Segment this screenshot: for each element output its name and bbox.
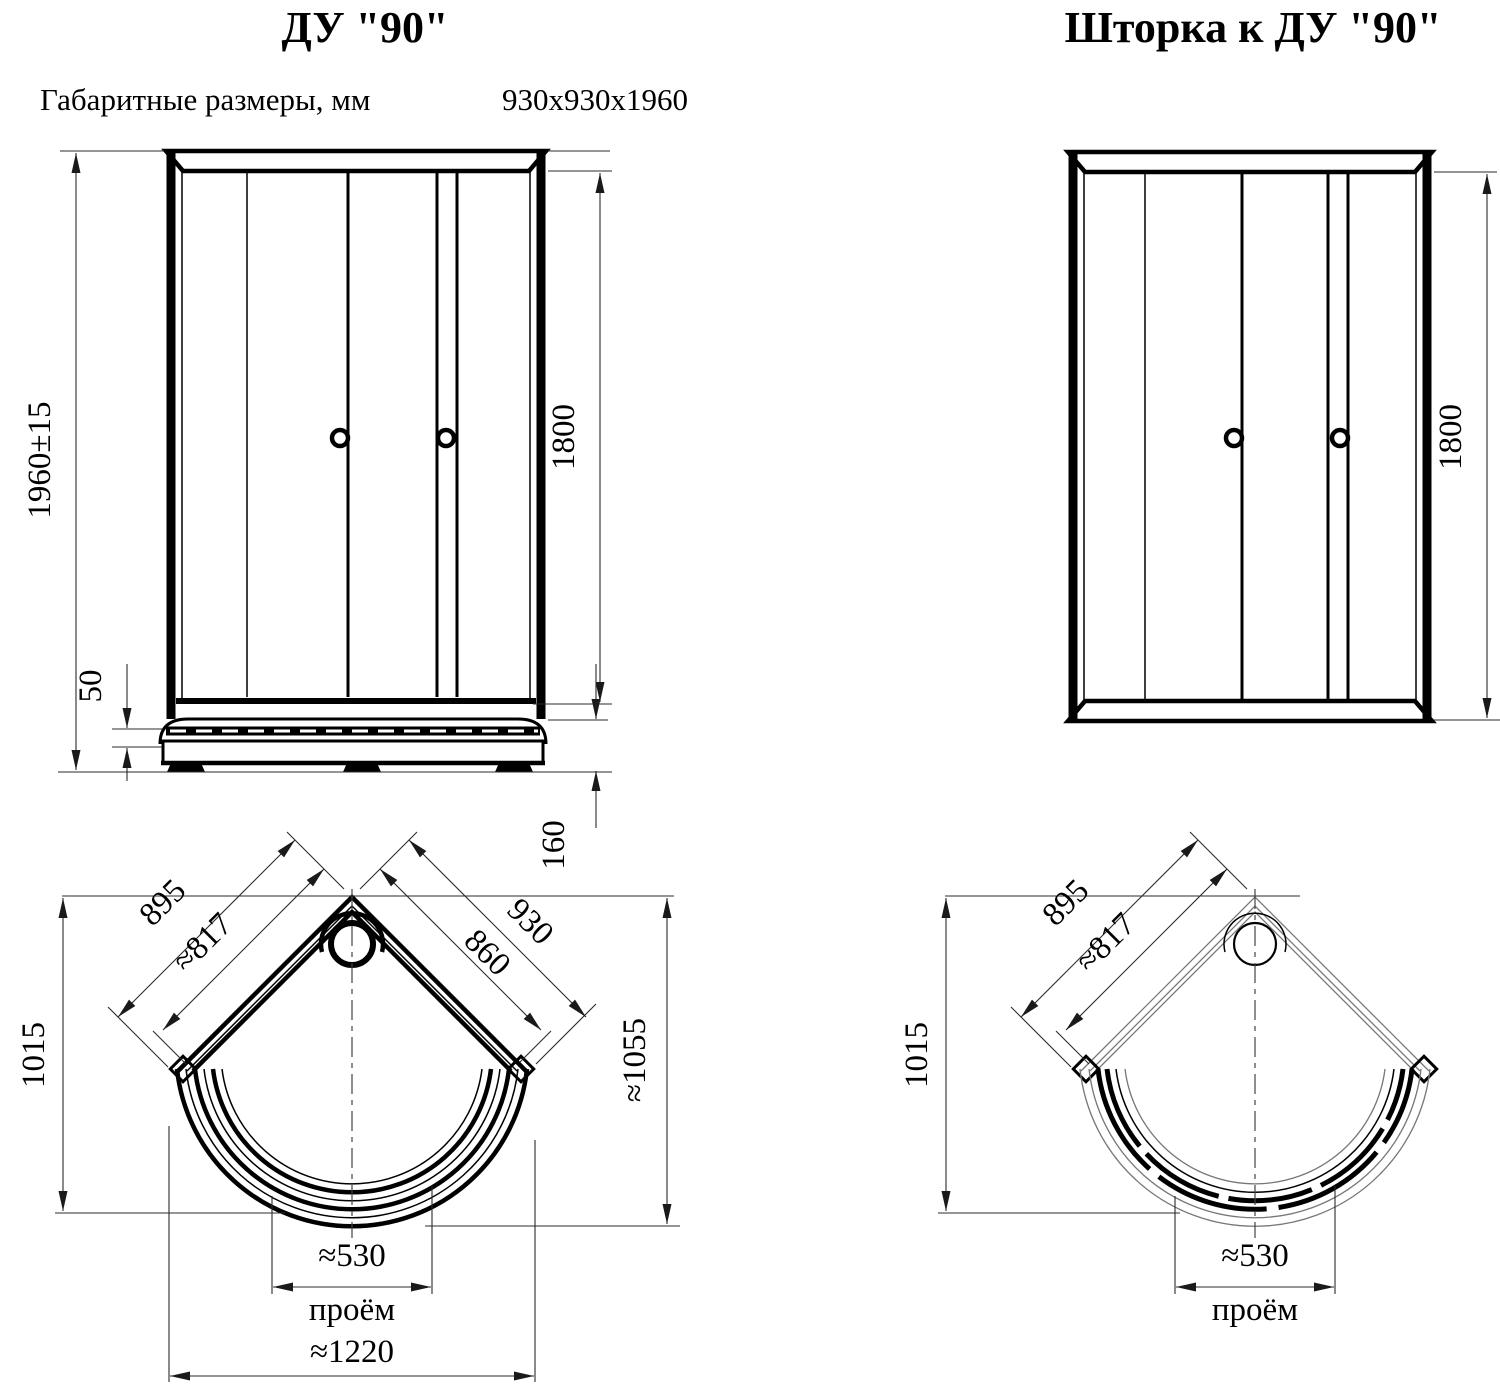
tray-foot [167, 763, 205, 772]
dim-rim-gap: 50 [73, 670, 109, 703]
dim-side-left-inner: ≈817 [1069, 906, 1142, 979]
dim-depth-right: ≈1055 [617, 1018, 653, 1102]
top-rail [1068, 152, 1432, 172]
dim-door-height: 1800 [546, 404, 582, 470]
drawing-page: ДУ "90" Габаритные размеры, мм 930х930х1… [0, 0, 1500, 1384]
dim-side-left: 895 [133, 873, 193, 933]
curtain-front-dimensions: 1800 [1433, 172, 1500, 720]
door-handle-icon [1332, 430, 1348, 446]
dim-side-right-inner: 860 [457, 923, 517, 983]
left-dims-value: 930х930х1960 [502, 82, 688, 117]
dim-tray-height: 160 [536, 820, 572, 870]
dim-overall-width: ≈1220 [310, 1334, 394, 1370]
curtain-front-view [1068, 152, 1432, 721]
wall-end-bracket [1411, 1056, 1436, 1081]
top-rail [166, 151, 546, 171]
dim-side-left: 895 [1036, 873, 1096, 933]
left-title: ДУ "90" [282, 3, 449, 52]
door-handle-icon [332, 430, 348, 446]
opening-label: проём [1212, 1292, 1298, 1328]
dim-overall-height: 1960±15 [22, 401, 58, 518]
door-handle-icon [1226, 430, 1242, 446]
tray-foot [495, 763, 533, 772]
door-handle-icon [438, 430, 454, 446]
dim-opening-width: ≈530 [318, 1238, 386, 1274]
tray-base [163, 741, 543, 763]
bottom-rail [1068, 701, 1432, 721]
technical-drawing: ДУ "90" Габаритные размеры, мм 930х930х1… [0, 0, 1500, 1384]
dim-depth-left: 1015 [899, 1022, 935, 1088]
du90-front-view [58, 151, 612, 772]
dim-door-height: 1800 [1433, 404, 1469, 470]
tray-foot [343, 763, 381, 772]
wall-end-bracket [1073, 1056, 1098, 1081]
opening-label: проём [309, 1292, 395, 1328]
dim-side-right: 930 [500, 892, 560, 952]
dim-depth-left: 1015 [16, 1022, 52, 1088]
right-title: Шторка к ДУ "90" [1065, 3, 1442, 52]
left-dims-label: Габаритные размеры, мм [40, 82, 371, 117]
dim-side-left-inner: ≈817 [166, 906, 239, 979]
dim-opening-width: ≈530 [1221, 1238, 1289, 1274]
